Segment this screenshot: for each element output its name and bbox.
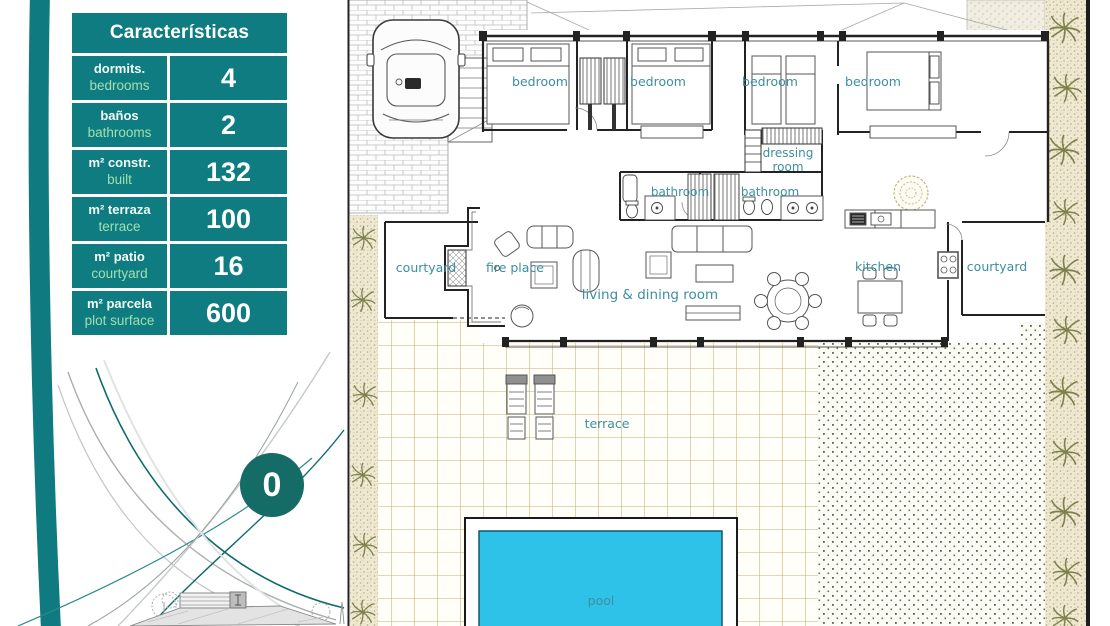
room-label-bedroom-1: bedroom bbox=[512, 74, 568, 89]
table-row: m² patio courtyard 16 bbox=[72, 244, 287, 288]
label-es: m² terraza bbox=[88, 202, 150, 218]
label-en: courtyard bbox=[91, 266, 147, 283]
room-label-dressing-2: room bbox=[772, 160, 803, 174]
label-es: m² patio bbox=[94, 249, 145, 265]
row-label: m² patio courtyard bbox=[72, 244, 167, 288]
room-label-bathroom-2: bathroom bbox=[741, 185, 799, 199]
table-row: m² constr. built 132 bbox=[72, 150, 287, 194]
label-es: m² parcela bbox=[87, 296, 152, 312]
floor-plan: bedroom bedroom bedroom bedroom dressing… bbox=[345, 0, 1090, 626]
palm-strip-left bbox=[350, 215, 378, 626]
teal-bar bbox=[39, 0, 51, 626]
label-es: baños bbox=[100, 108, 138, 124]
sketch-roof bbox=[130, 606, 336, 626]
label-en: bedrooms bbox=[89, 78, 149, 95]
plot-border-right bbox=[1086, 0, 1090, 626]
room-label-kitchen: kitchen bbox=[855, 259, 901, 274]
room-label-pool: pool bbox=[588, 593, 615, 608]
palm-strip-right bbox=[1045, 0, 1086, 626]
page: Características dormits. bedrooms 4 baño… bbox=[0, 0, 1110, 626]
row-label: dormits. bedrooms bbox=[72, 56, 167, 100]
room-label-dressing: dressing bbox=[763, 146, 814, 160]
label-en: plot surface bbox=[85, 313, 155, 330]
label-en: bathrooms bbox=[88, 125, 152, 142]
room-label-bedroom-4: bedroom bbox=[845, 74, 901, 89]
row-value: 600 bbox=[170, 291, 287, 335]
table-header: Características bbox=[72, 13, 287, 53]
table-row: dormits. bedrooms 4 bbox=[72, 56, 287, 100]
row-label: m² constr. built bbox=[72, 150, 167, 194]
row-label: m² terraza terrace bbox=[72, 197, 167, 241]
row-value: 2 bbox=[170, 103, 287, 147]
house-sketch bbox=[118, 584, 348, 626]
floor-badge: 0 bbox=[240, 453, 304, 517]
bush-icon bbox=[894, 176, 928, 210]
room-label-bathroom-1: bathroom bbox=[651, 185, 709, 199]
label-en: terrace bbox=[98, 219, 140, 236]
label-es: dormits. bbox=[94, 61, 145, 77]
lawn-dotted-area bbox=[818, 322, 1045, 626]
pool bbox=[465, 518, 737, 626]
table-row: m² terraza terrace 100 bbox=[72, 197, 287, 241]
room-label-bedroom-2: bedroom bbox=[630, 74, 686, 89]
room-label-terrace: terrace bbox=[585, 416, 630, 431]
room-label-living-dining: living & dining room bbox=[582, 287, 718, 303]
room-label-courtyard-left: courtyard bbox=[396, 260, 456, 275]
row-value: 4 bbox=[170, 56, 287, 100]
row-label: baños bathrooms bbox=[72, 103, 167, 147]
car bbox=[367, 20, 465, 138]
label-en: built bbox=[107, 172, 132, 189]
room-label-fire-place: fire place bbox=[486, 260, 544, 275]
row-label: m² parcela plot surface bbox=[72, 291, 167, 335]
row-value: 100 bbox=[170, 197, 287, 241]
characteristics-table: Características dormits. bedrooms 4 baño… bbox=[72, 13, 287, 335]
table-row: baños bathrooms 2 bbox=[72, 103, 287, 147]
label-es: m² constr. bbox=[88, 155, 150, 171]
row-value: 16 bbox=[170, 244, 287, 288]
room-label-bedroom-3: bedroom bbox=[742, 74, 798, 89]
row-value: 132 bbox=[170, 150, 287, 194]
table-row: m² parcela plot surface 600 bbox=[72, 291, 287, 335]
room-label-courtyard-right: courtyard bbox=[967, 259, 1027, 274]
